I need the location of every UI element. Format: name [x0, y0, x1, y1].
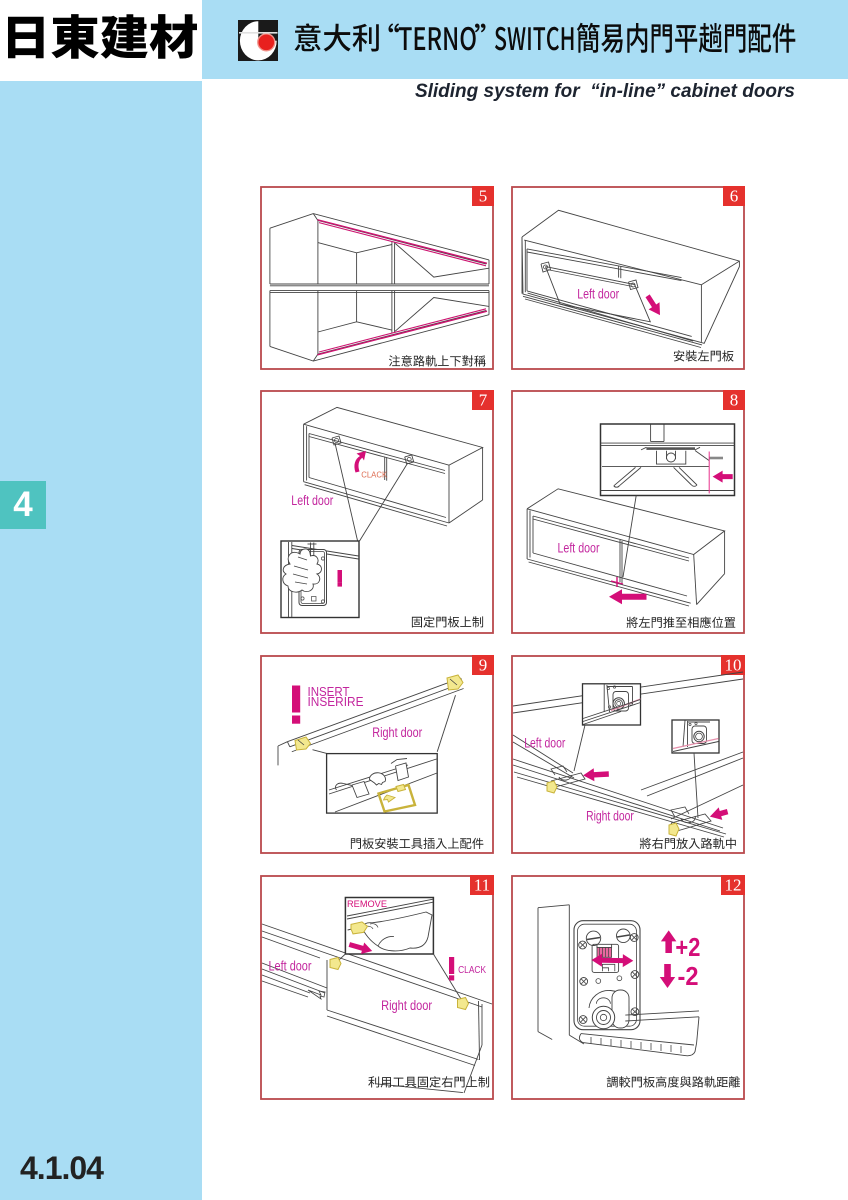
svg-text:10: 10 — [725, 656, 742, 675]
svg-text:+2: +2 — [675, 932, 700, 962]
svg-text:8: 8 — [730, 391, 739, 410]
svg-text:11: 11 — [474, 876, 490, 895]
svg-text:7: 7 — [479, 391, 488, 410]
svg-text:CLACK: CLACK — [361, 471, 388, 480]
svg-text:Left door: Left door — [291, 493, 333, 508]
svg-text:Left door: Left door — [269, 958, 312, 973]
svg-text:9: 9 — [479, 656, 488, 675]
svg-text:Right door: Right door — [372, 725, 422, 740]
svg-text:Left door: Left door — [524, 736, 566, 751]
svg-text:REMOVE: REMOVE — [347, 899, 387, 910]
svg-text:6: 6 — [730, 187, 739, 206]
svg-text:12: 12 — [725, 876, 742, 895]
svg-text:INSERIRE: INSERIRE — [308, 694, 364, 709]
svg-text:Right door: Right door — [381, 998, 432, 1013]
svg-text:5: 5 — [479, 187, 488, 206]
svg-text:Left door: Left door — [558, 541, 600, 556]
svg-text:CLACK: CLACK — [458, 965, 486, 976]
svg-text:Left door: Left door — [577, 286, 619, 301]
svg-text:-2: -2 — [678, 961, 699, 991]
svg-text:Right door: Right door — [586, 808, 634, 823]
